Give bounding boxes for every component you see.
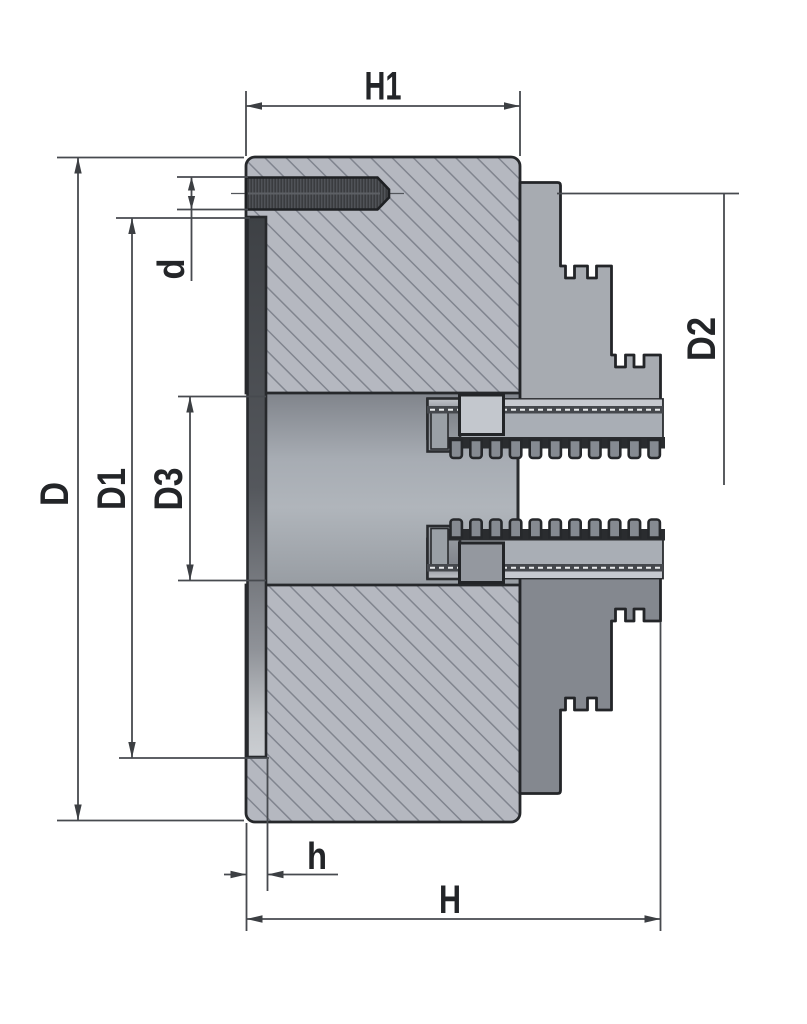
svg-text:D1: D1 <box>90 468 134 510</box>
svg-text:h: h <box>307 836 327 878</box>
svg-text:d: d <box>151 259 193 280</box>
svg-text:D2: D2 <box>680 317 724 361</box>
svg-text:H1: H1 <box>365 65 402 109</box>
svg-text:D: D <box>33 482 77 506</box>
svg-text:H: H <box>439 878 461 922</box>
svg-text:D3: D3 <box>147 468 191 511</box>
